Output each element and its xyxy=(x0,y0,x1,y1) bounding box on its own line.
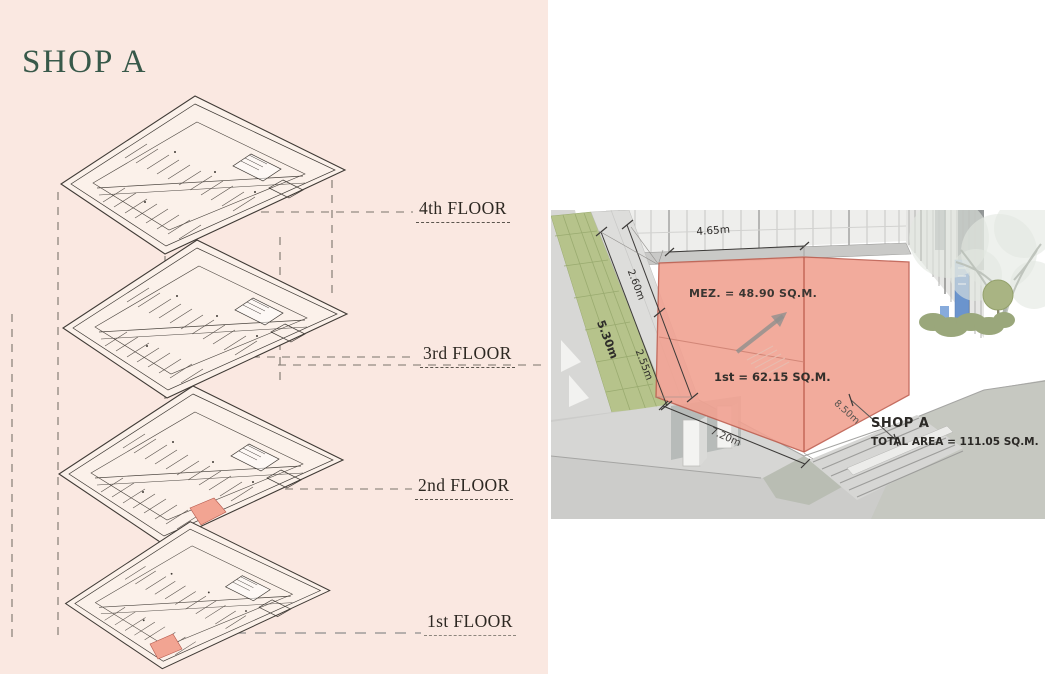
render-panel: MEZ. = 48.90 SQ.M. 1st = 62.15 SQ.M. SHO… xyxy=(548,0,1045,674)
shop-render: MEZ. = 48.90 SQ.M. 1st = 62.15 SQ.M. SHO… xyxy=(551,210,1045,519)
floor-plan-3rd xyxy=(63,240,347,398)
dim-top-width: 4.65m xyxy=(696,224,730,238)
first-floor-area-label: 1st = 62.15 SQ.M. xyxy=(714,370,831,384)
floor-label-3rd: 3rd FLOOR xyxy=(420,343,515,368)
floor-label-1st: 1st FLOOR xyxy=(424,611,516,636)
floor-stack-panel: SHOP A xyxy=(0,0,548,674)
render-scene-graphic xyxy=(551,210,1045,519)
mezzanine-area-label: MEZ. = 48.90 SQ.M. xyxy=(689,287,817,300)
building-facade xyxy=(606,210,911,266)
floor-plan-1st xyxy=(66,522,330,669)
floor-plan-stack-graphic xyxy=(0,0,548,674)
floor-label-4th: 4th FLOOR xyxy=(416,198,510,223)
entry-pillar xyxy=(683,420,700,466)
floor-label-2nd: 2nd FLOOR xyxy=(415,475,513,500)
total-area-label: TOTAL AREA = 111.05 SQ.M. xyxy=(871,436,1039,448)
floor-plan-4th xyxy=(61,96,345,254)
shop-a-slide: SHOP A xyxy=(0,0,1045,674)
shop-name-label: SHOP A xyxy=(871,416,929,431)
